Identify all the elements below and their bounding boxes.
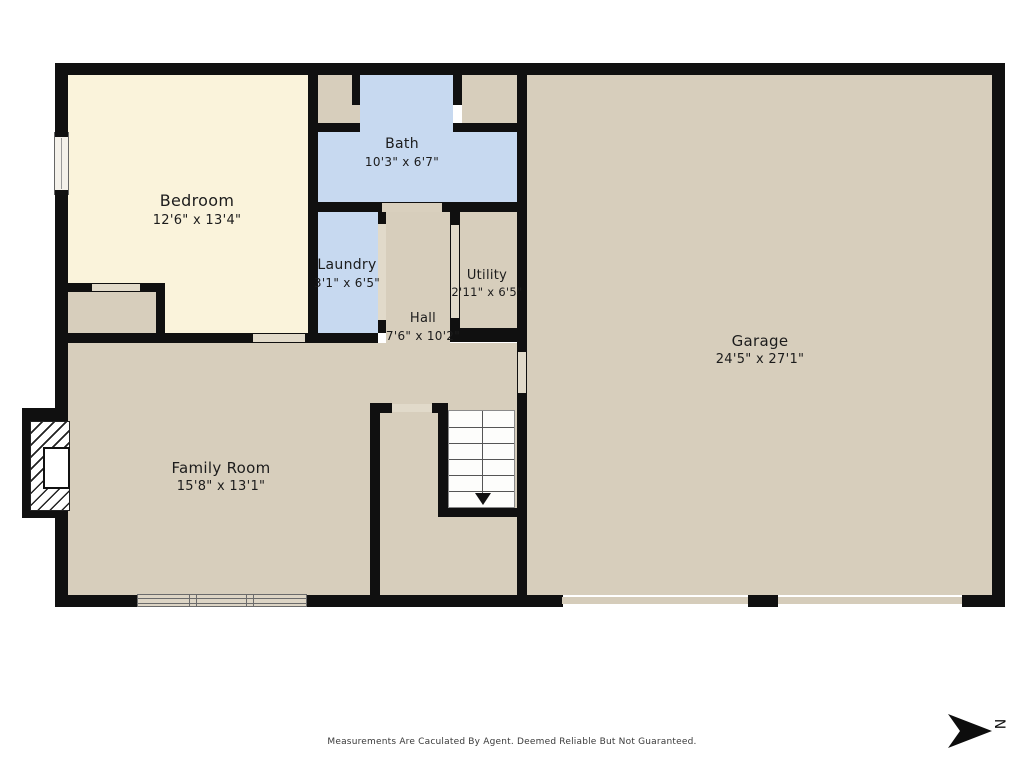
room-dims: 10'3" x 6'7" [365,154,439,170]
room-dims: 2'11" x 6'5" [451,285,522,301]
staircase [448,410,515,508]
room-name: Bath [365,135,439,154]
room-name: Utility [451,267,522,285]
wall-segment [453,123,517,132]
door-opening [518,352,526,393]
room-label-hall: Hall 7'6" x 10'2" [386,310,460,344]
wall-segment [517,63,527,607]
stairs-down-arrow-icon [475,493,491,505]
window-cap [55,132,68,137]
room-dims: 12'6" x 13'4" [153,212,242,230]
room-label-bedroom: Bedroom 12'6" x 13'4" [153,190,242,229]
wall-segment [55,63,1005,75]
window-pane-line [61,138,62,189]
room-dims: 24'5" x 27'1" [716,351,805,369]
room-label-bath: Bath 10'3" x 6'7" [365,135,439,170]
slider-track-line [138,598,306,599]
room-name: Family Room [171,458,270,478]
stairwell-wall [438,508,525,517]
door-opening [253,334,305,342]
wall-segment [370,403,380,607]
door-opening [382,203,442,212]
slider-divider [189,595,197,606]
garage-door-opening [562,597,748,604]
room-name: Hall [386,310,460,328]
fireplace-firebox [43,447,70,489]
wall-segment [453,75,462,105]
door-opening [392,404,432,412]
wall-segment [308,123,360,132]
room-label-garage: Garage 24'5" x 27'1" [716,331,805,369]
wall-segment [55,333,378,343]
stairwell-wall [438,403,448,517]
room-name: Laundry [314,256,380,275]
room-label-family-room: Family Room 15'8" x 13'1" [171,458,270,496]
slider-track-line [138,603,306,604]
door-opening [92,284,140,291]
wall-segment [450,328,527,342]
closet-wall [156,283,165,333]
room-dims: 7'6" x 10'2" [386,328,460,344]
sliding-door-symbol [137,594,307,607]
room-name: Garage [716,331,805,351]
wall-segment [992,63,1005,607]
garage-door-post [748,595,778,607]
bath-alcove-right [462,75,517,130]
bedroom-closet-floor [68,292,156,333]
floor-plan: Bedroom 12'6" x 13'4" Bath 10'3" x 6'7" … [0,0,1024,768]
disclaimer-text: Measurements Are Caculated By Agent. Dee… [0,737,1024,747]
slider-divider [246,595,254,606]
room-label-utility: Utility 2'11" x 6'5" [451,267,522,300]
room-dims: 3'1" x 6'5" [314,275,380,291]
stair-center-line [482,411,483,495]
room-dims: 15'8" x 13'1" [171,478,270,496]
wall-segment [352,75,360,105]
bath-floor-upper [360,75,453,132]
room-label-laundry: Laundry 3'1" x 6'5" [314,256,380,291]
window-cap [55,190,68,195]
room-name: Bedroom [153,190,242,212]
north-label: N [991,719,1007,729]
window-symbol [54,132,69,195]
garage-door-opening [778,597,962,604]
wall-segment [962,595,1005,607]
